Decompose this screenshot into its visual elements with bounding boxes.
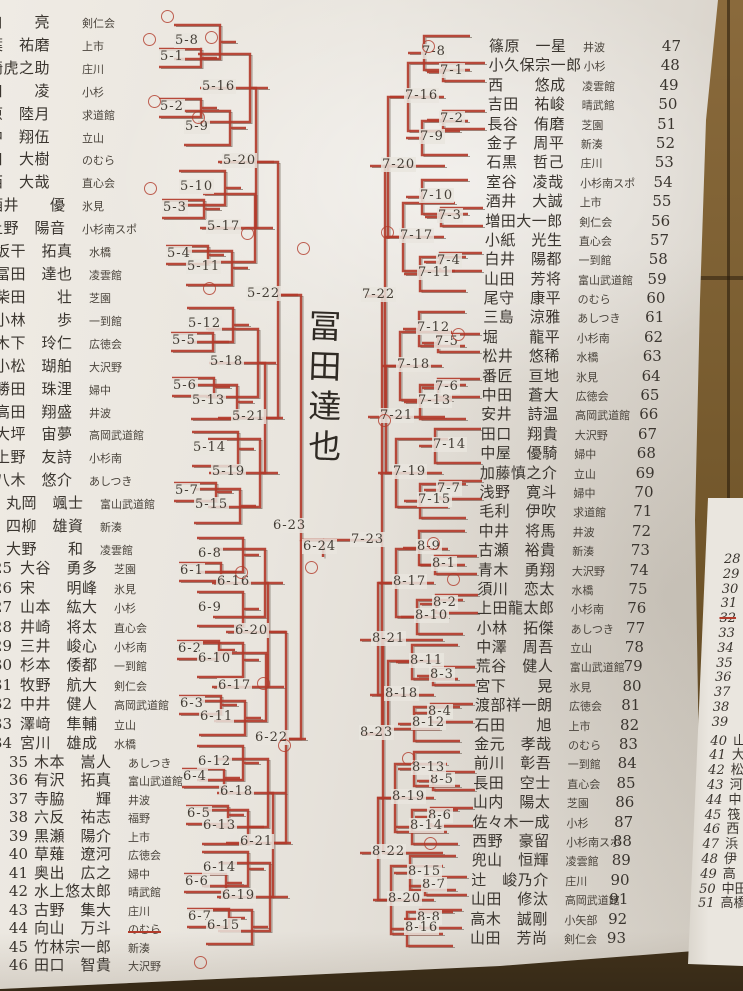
entry-number: 57 [645,231,669,249]
entry-name: 中屋 優騎 [480,444,572,462]
entry-name: 長田 空士 [473,774,565,792]
entry-club: 庄川 [581,157,603,170]
entry-club: 広徳会 [569,700,602,713]
entry-row: 加藤慎之介立山69 [0,464,596,484]
entry-name: 荒谷 健人 [476,657,568,675]
entry-name: 宮下 晃 [475,677,567,695]
entry-number: 75 [624,580,648,598]
entry-club: 立山 [574,468,596,481]
red-circle-annotation [241,227,254,240]
entry-name: 毛利 伊吹 [479,502,571,520]
entry-club: 婦中 [574,487,596,500]
entry-name: 佐々木一成 [472,813,564,831]
entry-club: 小杉 [584,60,606,73]
red-circle-annotation [148,95,161,108]
entry-number: 63 [638,347,662,365]
entry-name: 青木 勇翔 [478,561,570,579]
entry-name: 田口 智貴 [34,956,126,974]
entry-club: 求道館 [573,506,606,519]
entry-number: 61 [640,308,664,326]
entry-row: 兜山 恒輝凌雲館89 [0,851,599,871]
entry-row: 白 亮剣仁会 [0,13,115,33]
entry-club: 水橋 [571,584,593,597]
entry-row: 須川 恋太水橋75 [0,580,593,600]
entry-club: 大沢野 [575,429,608,442]
entry-row: 西野 豪留小杉南スポ88 [0,832,621,852]
second-sheet-row: 37 [714,685,731,700]
entry-number: 91 [604,890,628,908]
entry-name: 三島 涼雅 [483,308,575,326]
entry-number: 38 [713,700,730,715]
entry-name: 山田 修汰 [471,890,563,908]
entry-row: 小久保宗一郎小杉48 [0,56,606,76]
entry-name: 山内 陽太 [473,793,565,811]
entry-club: 庄川 [565,875,587,888]
entry-row: 金子 周平新湊52 [0,134,603,154]
entry-club: 富山武道館 [570,661,625,674]
entry-row: 宮下 晃氷見80 [0,677,591,697]
entry-number: 70 [630,483,654,501]
entry-row: 田口 翔貴大沢野67 [0,425,608,445]
red-circle-annotation [278,739,291,752]
entry-number: 37 [714,685,731,700]
entry-number: 72 [627,522,651,540]
red-circle-annotation [192,111,205,124]
entry-row: 篠原 一星井波47 [0,37,605,57]
red-circle-annotation [161,10,174,23]
entry-row: 松井 悠稀水橋63 [0,347,598,367]
entry-number: 92 [603,910,627,928]
entry-name: 山田 芳尚 [470,929,562,947]
entry-name: 堀 龍平 [483,328,575,346]
red-circle-annotation [205,31,218,44]
entry-name: 加藤慎之介 [480,464,572,482]
entry-number: 62 [639,328,663,346]
entry-number: 51 [698,896,715,911]
entry-number: 80 [618,677,642,695]
entry-club: 小杉 [566,817,588,830]
entry-number: 49 [655,76,679,94]
entry-row: 高木 誠剛小矢部92 [0,910,597,930]
entry-name: 古瀬 裕貴 [478,541,570,559]
entry-name: 石黒 哲己 [487,153,579,171]
entry-number: 81 [616,696,640,714]
entry-name: 浅野 寛斗 [480,483,572,501]
entry-number: 71 [628,502,652,520]
red-circle-annotation [424,837,437,850]
entry-row: 増田大一郎剣仁会56 [0,212,612,232]
entry-name: 西野 豪留 [472,832,564,850]
entry-club: 晴武館 [582,99,615,112]
entry-name: 篠原 一星 [489,37,581,55]
entry-name: 増田大一郎 [485,212,577,230]
entry-row: 山田 修汰高岡武道館91 [0,890,620,910]
entry-name: 上田龍太郎 [477,599,569,617]
entry-club: 上市 [580,196,602,209]
red-circle-annotation [235,566,248,579]
red-circle-annotation [305,561,318,574]
entry-name: 番匠 亘地 [482,367,574,385]
entry-row: 辻 峻乃介庄川90 [0,871,587,891]
second-sheet-row: 31 [721,596,738,611]
entry-name: 長谷 侑磨 [487,115,579,133]
entry-row: 長田 空士直心会85 [0,774,600,794]
entry-name: 白 亮 [0,13,80,31]
entry-club: 一到館 [578,254,611,267]
entry-row: 小林 拓傑あしつき77 [0,619,614,639]
entry-name-fragment: 高橋 [721,896,743,911]
entry-number: 58 [644,250,668,268]
second-sheet-row: 28 [724,552,741,567]
second-sheet-row: 32 [719,611,736,626]
wall-photo: { "tournament": { "winner_vertical_name"… [0,0,743,991]
entry-name: 中井 将馬 [479,522,571,540]
second-sheet-row: 36 [715,670,732,685]
entry-row: 青木 勇翔大沢野74 [0,561,605,581]
red-circle-annotation [381,226,394,239]
entry-row: 中屋 優騎婦中68 [0,444,596,464]
entry-club: 芝園 [567,797,589,810]
entry-club: 小杉南 [571,603,604,616]
entry-club: あしつき [571,623,614,636]
entry-number: 77 [621,619,645,637]
entry-name: 吉田 祐峻 [488,95,580,113]
entry-club: 氷見 [576,371,598,384]
entry-number: 87 [609,813,633,831]
entry-club: 小矢部 [564,914,597,927]
entry-row: 長谷 侑磨芝園51 [0,115,603,135]
entry-club: 大沢野 [572,565,605,578]
entry-row: 浅野 寛斗婦中70 [0,483,596,503]
entry-name: 高木 誠剛 [470,910,562,928]
second-sheet-row: 35 [716,656,733,671]
second-sheet-row: 51高橋 [698,892,743,911]
red-circle-annotation [257,677,270,690]
entry-number: 79 [619,657,643,675]
entry-club: 水橋 [576,351,598,364]
entry-number: 33 [718,626,735,641]
winner-name-char: 也 [304,419,346,468]
entry-row: 室谷 凌哉小杉南スポ54 [0,173,635,193]
entry-number: 73 [626,541,650,559]
second-sheet-row: 39 [712,715,729,730]
entry-name: 辻 峻乃介 [471,871,563,889]
entry-name: 小林 拓傑 [477,619,569,637]
red-circle-annotation [447,573,460,586]
entry-name: 酒井 大誠 [486,192,578,210]
entry-club: 凌雲館 [582,80,615,93]
entry-name: 兜山 恒輝 [472,851,564,869]
entry-row: 上田龍太郎小杉南76 [0,599,604,619]
entry-club: 立山 [570,642,592,655]
entry-number: 48 [656,56,680,74]
entry-row: 中澤 周吾立山78 [0,638,592,658]
entry-row: 前川 彰吾一到館84 [0,754,601,774]
entry-number: 78 [620,638,644,656]
entry-club: 高岡武道館 [575,409,630,422]
entry-club: 広徳会 [576,390,609,403]
entry-name: 金元 孝哉 [474,735,566,753]
entry-number: 65 [635,386,659,404]
entry-row: 石黒 哲己庄川53 [0,153,603,173]
entry-number: 64 [637,367,661,385]
entry-number: 31 [721,596,738,611]
entry-number: 66 [634,405,658,423]
entry-club: 新湊 [581,138,603,151]
second-sheet-row: 29 [723,567,740,582]
entry-row: 番匠 亘地氷見64 [0,367,598,387]
red-circle-annotation [144,182,157,195]
entry-row: 山田 芳将富山武道館59 [0,270,633,290]
entry-number: 67 [633,425,657,443]
entry-club: のむら [578,293,611,306]
entry-row: 酒井 大誠上市55 [0,192,602,212]
entry-club: 井波 [583,41,605,54]
entry-number: 59 [643,270,667,288]
entry-name: 石田 旭 [475,716,567,734]
entry-club: のむら [568,739,601,752]
red-circle-annotation [143,33,156,46]
entry-club: 直心会 [579,235,612,248]
entry-name: 松井 悠稀 [482,347,574,365]
entry-club: 一到館 [568,758,601,771]
second-sheet-row: 34 [717,641,734,656]
entry-club: 上市 [569,720,591,733]
entry-number: 85 [612,774,636,792]
entry-number: 51 [652,115,676,133]
entry-row: 吉田 祐峻晴武館50 [0,95,615,115]
entry-club: 大沢野 [128,960,161,973]
entry-number: 82 [615,716,639,734]
entry-number: 34 [717,641,734,656]
entry-number: 76 [622,599,646,617]
entry-name: 白井 陽都 [484,250,576,268]
entry-number: 47 [657,37,681,55]
entry-name: 中田 蒼大 [482,386,574,404]
entry-club: 剣仁会 [579,216,612,229]
entry-number: 30 [722,582,739,597]
red-circle-annotation [297,242,310,255]
entry-row: 毛利 伊吹求道館71 [0,502,606,522]
red-circle-annotation [378,414,391,427]
entry-club: 富山武道館 [578,274,633,287]
entry-name: 室谷 凌哉 [486,173,578,191]
second-sheet-row: 33 [718,626,735,641]
entry-number: 60 [641,289,665,307]
entry-number: 50 [653,95,677,113]
entry-number: 39 [712,715,729,730]
entry-number: 84 [613,754,637,772]
entry-number: 69 [631,464,655,482]
entry-name: 西 悠成 [488,76,580,94]
entry-club: 小杉南スポ [580,177,635,190]
red-circle-annotation [402,752,415,765]
entry-name: 安井 詩温 [481,405,573,423]
entry-number: 90 [606,871,630,889]
red-circle-annotation [203,282,216,295]
entry-number: 88 [608,832,632,850]
entry-number: 55 [647,192,671,210]
entry-name: 山田 芳将 [484,270,576,288]
entry-row: 渡部祥一朗広徳会81 [0,696,602,716]
entry-number: 52 [651,134,675,152]
entry-name: 小紙 光生 [485,231,577,249]
entry-row: 中井 将馬井波72 [0,522,595,542]
entry-club: 芝園 [581,119,603,132]
entry-number: 54 [649,173,673,191]
entry-number: 83 [614,735,638,753]
entry-number: 28 [724,552,741,567]
entry-club: 剣仁会 [82,17,115,30]
entry-row: 石田 旭上市82 [0,716,591,736]
red-circle-annotation [422,40,435,53]
entry-name: 尾守 康平 [484,289,576,307]
entry-row: 46田口 智貴大沢野 [0,956,161,976]
entry-number: 36 [715,670,732,685]
entry-number: 29 [723,567,740,582]
entry-row: 金元 孝哉のむら83 [0,735,601,755]
entry-number: 93 [602,929,626,947]
entry-club: あしつき [577,312,620,325]
entry-name: 田口 翔貴 [481,425,573,443]
entry-number: 89 [607,851,631,869]
entry-number: 74 [625,561,649,579]
entry-number: 86 [610,793,634,811]
entry-club: 新湊 [572,545,594,558]
entry-name: 渡部祥一朗 [475,696,567,714]
entry-row: 古瀬 裕貴新湊73 [0,541,594,561]
entry-name: 金子 周平 [487,134,579,152]
entry-number: 32 [719,611,736,626]
entry-number: 35 [716,656,733,671]
entry-name: 須川 恋太 [477,580,569,598]
entry-number: 53 [650,153,674,171]
entry-club: 小杉南 [577,332,610,345]
entry-name: 前川 彰吾 [474,754,566,772]
entry-club: 井波 [573,526,595,539]
entry-club: 直心会 [567,778,600,791]
second-sheet-row: 38 [713,700,730,715]
entry-row: 西 悠成凌雲館49 [0,76,615,96]
entry-name: 中澤 周吾 [476,638,568,656]
red-circle-annotation [194,956,207,969]
entry-club: 氷見 [569,681,591,694]
entry-number: 68 [632,444,656,462]
entry-row: 佐々木一成小杉87 [0,813,588,833]
red-circle-annotation [452,328,465,341]
entry-name: 小久保宗一郎 [489,56,582,74]
entry-number: 56 [646,212,670,230]
entry-club: 凌雲館 [566,855,599,868]
entry-number: 46 [4,956,28,974]
entry-club: 剣仁会 [564,933,597,946]
red-circle-annotation [427,537,440,550]
entry-row: 山内 陽太芝園86 [0,793,589,813]
entry-club: 婦中 [574,448,596,461]
entry-row: 山田 芳尚剣仁会93 [0,929,597,949]
second-sheet-row: 30 [722,582,739,597]
entry-row: 荒谷 健人富山武道館79 [0,657,625,677]
